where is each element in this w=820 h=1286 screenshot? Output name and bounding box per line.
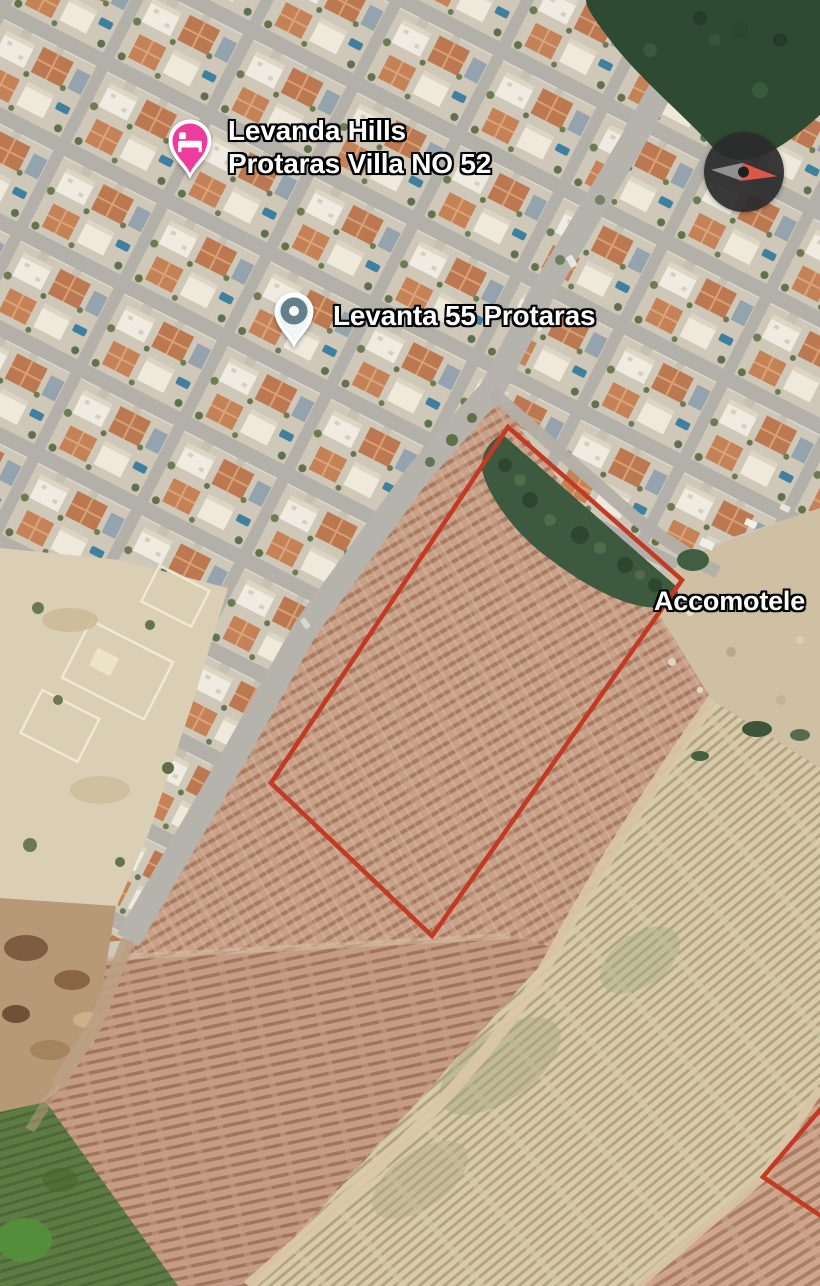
lodging-marker-pin[interactable]	[165, 116, 215, 186]
satellite-imagery	[0, 0, 820, 1286]
area-label: Accomotele	[654, 585, 805, 618]
bed-icon	[165, 116, 215, 181]
dot-pin-icon	[271, 288, 317, 350]
compass-needle-icon	[704, 132, 784, 212]
lodging-label-line1: Levanda Hills	[228, 114, 491, 147]
lodging-marker-label[interactable]: Levanda Hills Protaras Villa NO 52	[228, 114, 491, 180]
compass-button[interactable]	[704, 132, 784, 212]
place-marker-pin[interactable]	[271, 288, 317, 355]
lodging-label-line2: Protaras Villa NO 52	[228, 147, 491, 180]
map-viewport[interactable]: Levanda Hills Protaras Villa NO 52 Levan…	[0, 0, 820, 1286]
place-marker-label[interactable]: Levanta 55 Protaras	[333, 299, 595, 332]
